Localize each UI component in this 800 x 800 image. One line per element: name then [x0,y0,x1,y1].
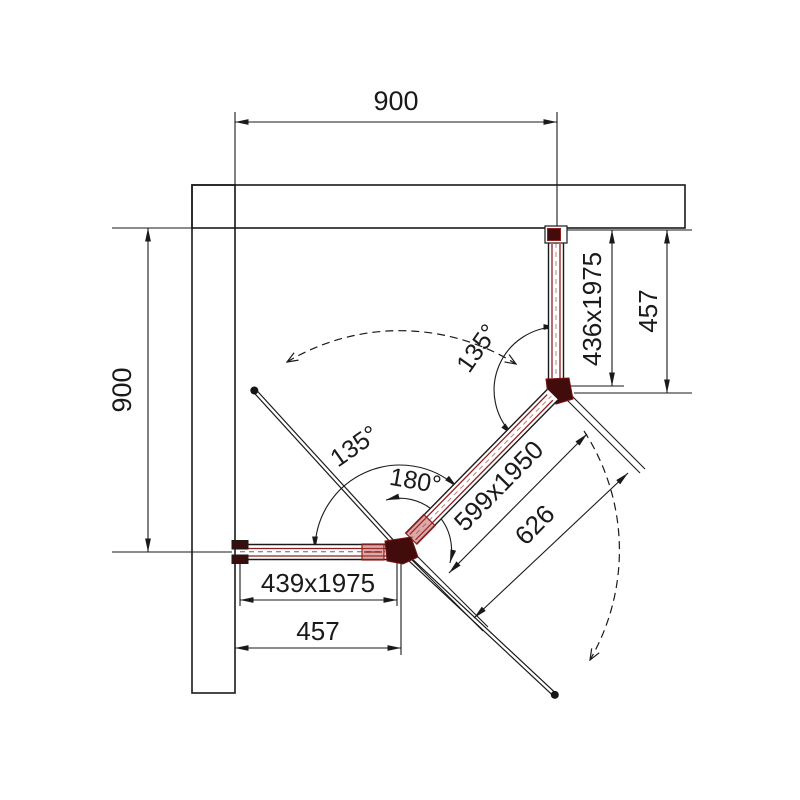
label-bottom-panel-size: 439x1975 [261,568,375,598]
technical-drawing-page: 900 900 436x1975 457 439x1975 457 599x19… [0,0,800,800]
label-right-panel-size: 436x1975 [577,252,607,366]
bottom-fixed-panel [232,541,391,564]
shower-enclosure-plan-drawing: 900 900 436x1975 457 439x1975 457 599x19… [0,0,800,800]
label-left-height: 900 [107,367,137,412]
label-right-wall-offset: 457 [633,289,663,332]
label-top-width: 900 [373,86,418,116]
wall-bracket-left [232,555,248,564]
wall-bracket-left [232,541,248,550]
label-bottom-wall-offset: 457 [296,616,339,646]
